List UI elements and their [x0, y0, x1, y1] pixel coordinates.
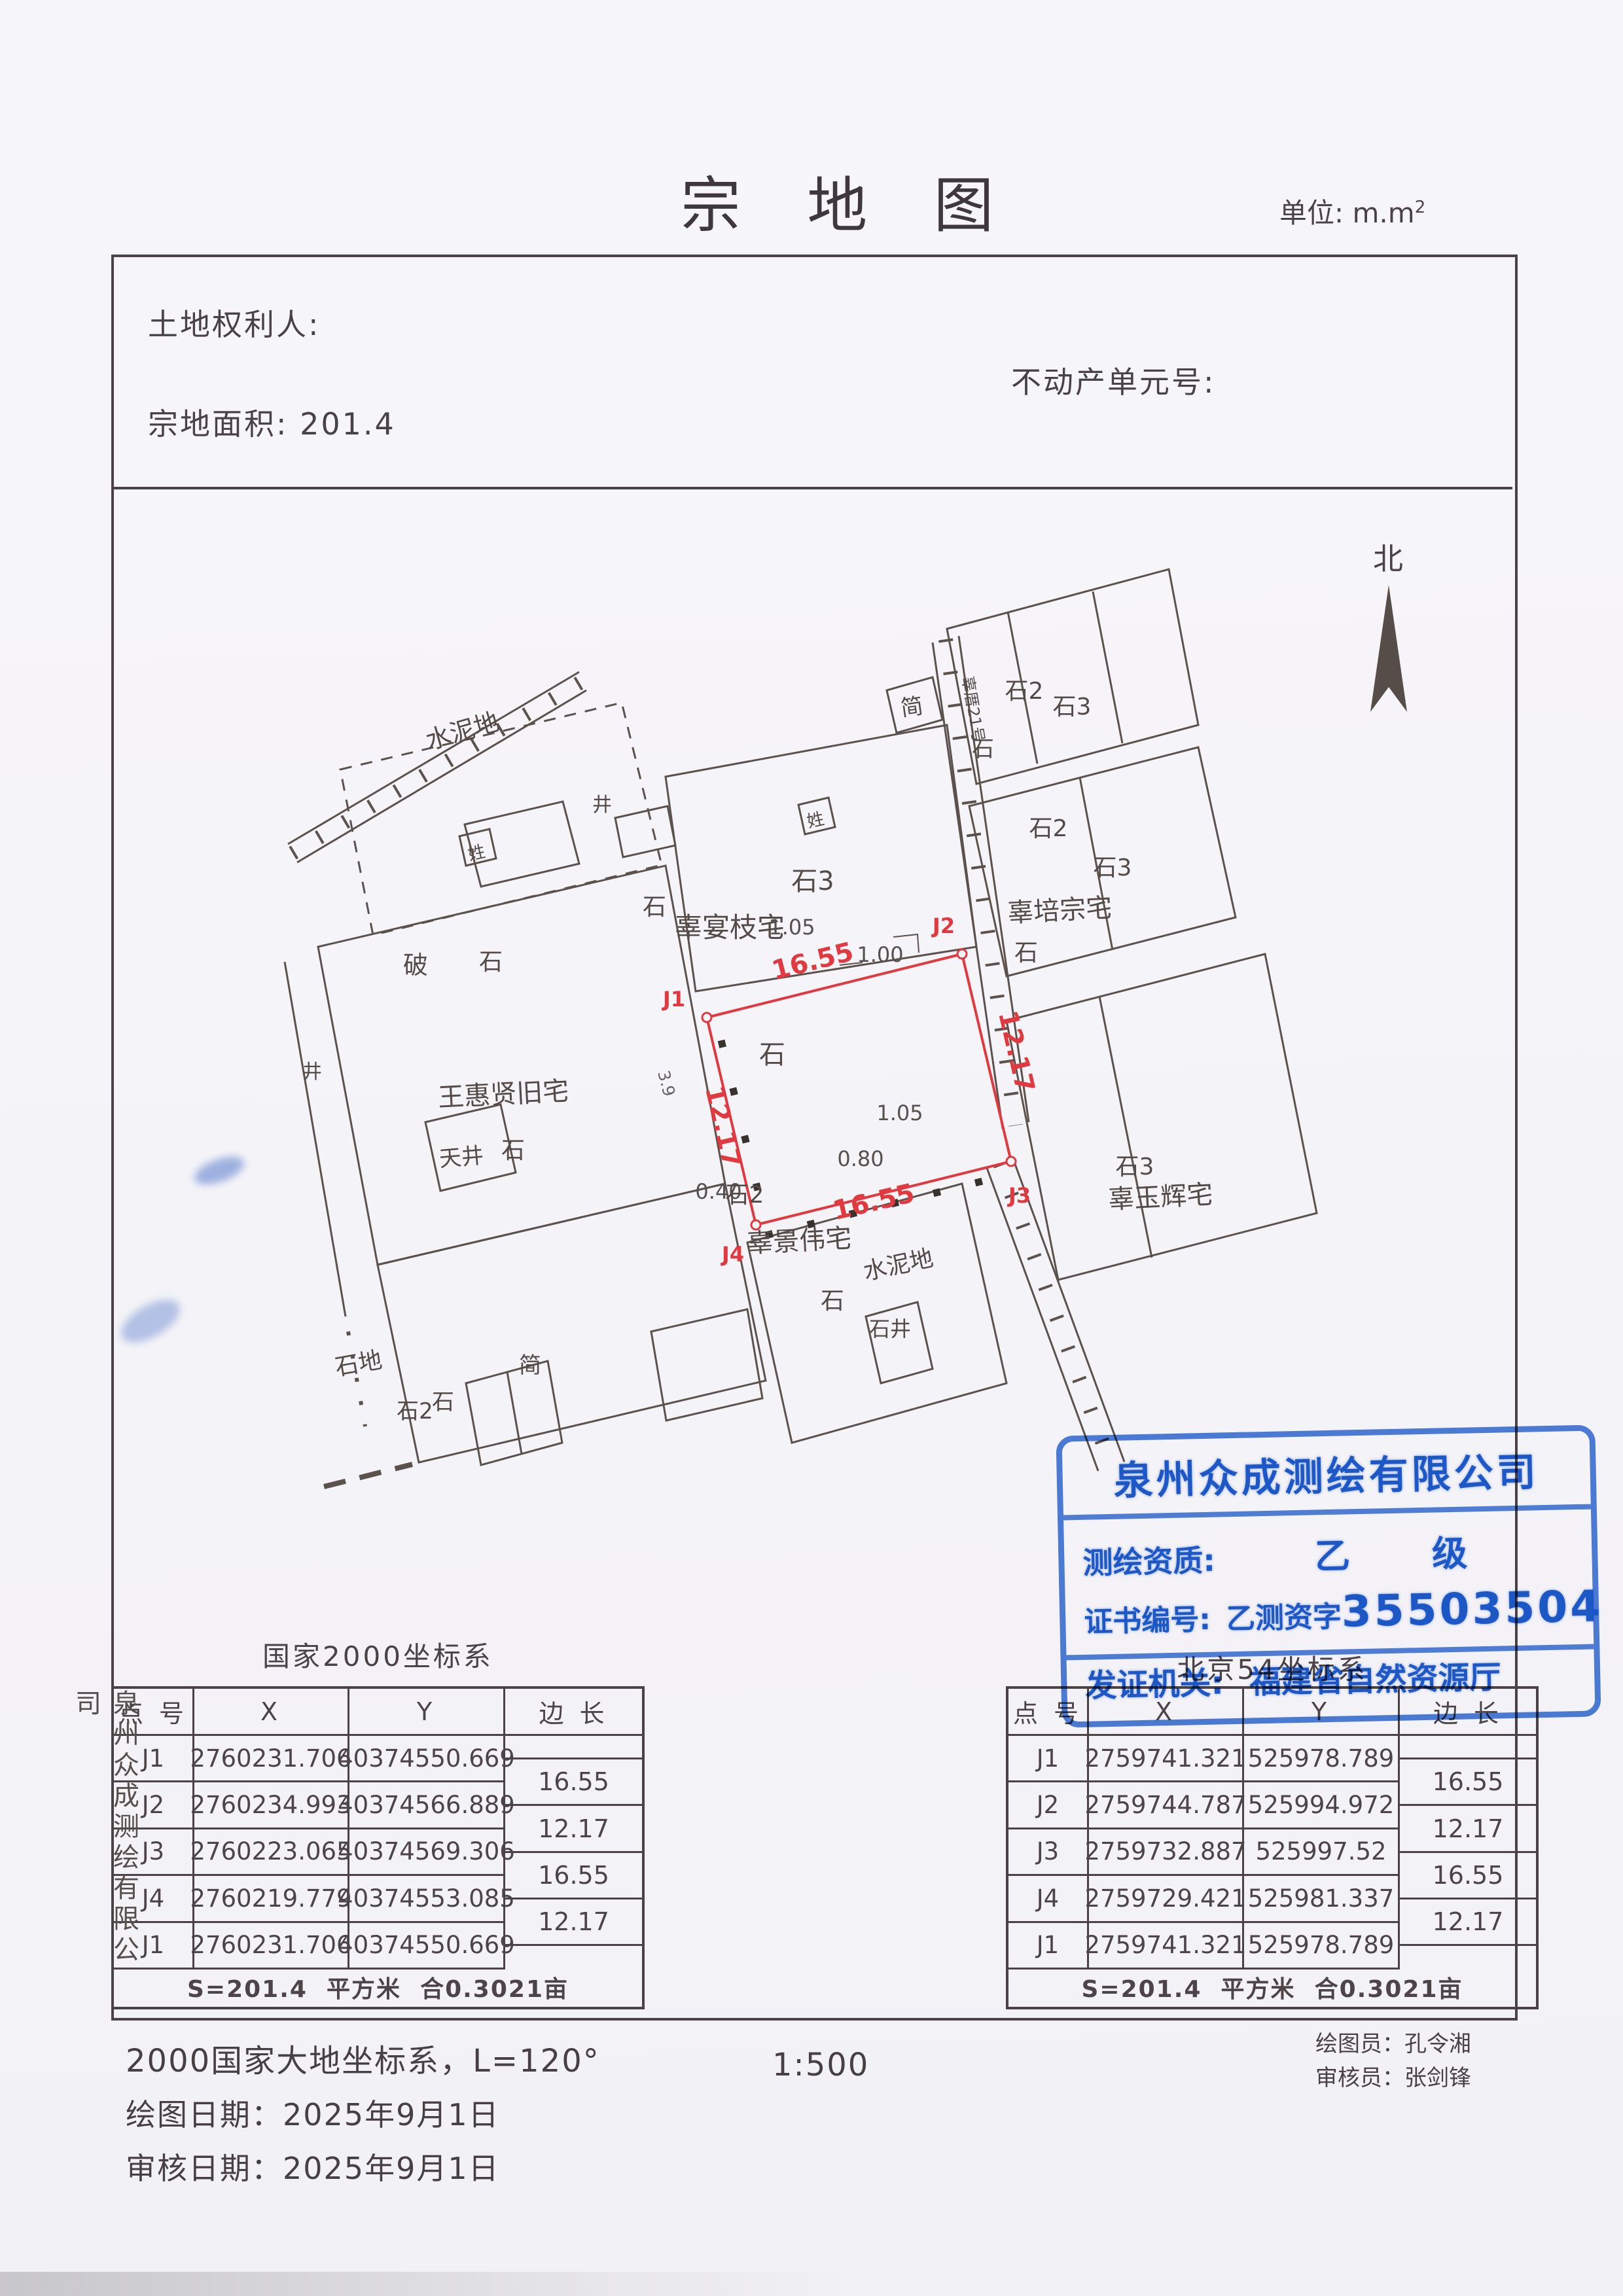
real-estate-unit-label: 不动产单元号:: [1011, 359, 1216, 402]
map-label: 石2: [397, 1398, 433, 1424]
cell: 525994.972: [1244, 1782, 1400, 1829]
cell: 2760219.779: [194, 1876, 349, 1922]
cell: 2759732.887: [1089, 1829, 1244, 1876]
map-label: 破: [403, 951, 428, 980]
building-wanghuixian: [318, 866, 725, 1265]
cell: 2759741.321: [1089, 1923, 1244, 1969]
map-label: 石2: [726, 1182, 764, 1209]
map-label: 王惠贤旧宅: [437, 1076, 569, 1113]
cell: 2760231.706: [194, 1736, 349, 1782]
cell: 525978.789: [1244, 1923, 1400, 1969]
drafter: 绘图员：孔令湘: [1315, 2026, 1471, 2058]
dim: 3.9: [654, 1069, 679, 1099]
stamp-issuer-value: 福建省自然资源厅: [1249, 1651, 1501, 1703]
cell: 40374566.889: [349, 1782, 505, 1829]
cell: J1: [1008, 1736, 1089, 1782]
area-summary: S=201.4 平方米 合0.3021亩: [1008, 1969, 1536, 2004]
map-labels: 水泥地 简 石3 辜宴枝宅 石 石 辜厝21号 石2 石3 石 石2 石3 辜培…: [302, 675, 1213, 1424]
parcel-area-label: 宗地面积: 201.4: [148, 400, 396, 444]
point-label: J4: [721, 1242, 744, 1267]
header-divider: [111, 487, 1512, 489]
review-date: 审核日期：2025年9月1日: [126, 2145, 500, 2188]
stamp-issuer-label: 发证机关:: [1085, 1657, 1224, 1705]
point-label: J2: [931, 913, 955, 938]
red-edge-lengths: 16.55 12.17 16.55 12.17 J1 J2 J3 J4: [662, 913, 1040, 1267]
map-label: 简: [519, 1352, 541, 1379]
map-label: 石: [759, 1040, 785, 1070]
col-header: 边 长: [505, 1689, 642, 1736]
cell: 40374569.306: [349, 1829, 505, 1876]
col-header: X: [194, 1689, 349, 1736]
building-bottomleft: [378, 1184, 766, 1462]
parcel-map-drawing: 16.55 12.17 16.55 12.17 J1 J2 J3 J4 1.05…: [249, 537, 1374, 1557]
dim: 0.80: [837, 1146, 883, 1171]
page-title: 宗 地 图: [681, 157, 1008, 244]
cell: J4: [1008, 1876, 1089, 1922]
edge-cell: 16.55: [505, 1759, 642, 1806]
road-hatching: [293, 681, 582, 853]
map-label: 石2: [1029, 815, 1068, 842]
edge-length: 16.55: [830, 1178, 918, 1226]
map-label: 石: [501, 1137, 525, 1164]
scanned-parcel-map-page: 宗 地 图 单位: m.m2 土地权利人: 不动产单元号: 宗地面积: 201.…: [0, 0, 1623, 2296]
map-label: 石: [1014, 940, 1038, 966]
cell: 40374550.669: [349, 1923, 505, 1969]
map-label: 天井: [438, 1142, 484, 1173]
edge-cell: 12.17: [1400, 1806, 1536, 1853]
map-label: 辜宴枝宅: [675, 911, 785, 944]
scan-artifact: [0, 2272, 851, 2296]
stamp-cert-prefix: 乙测资字: [1226, 1593, 1342, 1638]
vertex-J1: [702, 1013, 711, 1022]
map-label: 简: [899, 693, 925, 722]
stamp-company: 泉州众成测绘有限公司: [1062, 1431, 1591, 1521]
map-label: 辜培宗宅: [1007, 893, 1113, 928]
map-label: 石3: [1053, 694, 1092, 720]
coord-table-cgcs2000: 点 号 X Y 边 长 J12760231.70640374550.669 J2…: [111, 1686, 645, 2009]
table-header-row: 点 号 X Y 边 长: [114, 1689, 642, 1736]
dim: 1.00: [857, 942, 903, 967]
map-label: 石3: [1094, 855, 1132, 881]
cell: J2: [1008, 1782, 1089, 1829]
map-label: 石: [479, 949, 503, 976]
edge-cell: 16.55: [505, 1853, 642, 1899]
vertex-J2: [957, 949, 967, 959]
cell: 40374553.085: [349, 1876, 505, 1922]
col-header: Y: [349, 1689, 505, 1736]
area-summary: S=201.4 平方米 合0.3021亩: [114, 1969, 642, 2004]
draw-date: 绘图日期：2025年9月1日: [126, 2091, 500, 2134]
reviewer: 审核员：张剑锋: [1315, 2060, 1471, 2092]
edge-length-column: 16.55 12.17 16.55 12.17: [505, 1736, 642, 1969]
surveyor-stamp: 泉州众成测绘有限公司 测绘资质: 乙 级 证书编号: 乙测资字 35503504…: [1056, 1424, 1601, 1727]
edge-cell: 12.17: [1400, 1899, 1536, 1946]
sidebar-company-name: 泉州众成测绘有限公司: [67, 1689, 143, 1990]
left-table-title: 国家2000坐标系: [111, 1634, 645, 1674]
map-label: 石: [972, 736, 994, 762]
cell: 2759741.321: [1089, 1736, 1244, 1782]
edge-cell: 12.17: [505, 1899, 642, 1946]
land-rights-holder-label: 土地权利人:: [148, 301, 321, 344]
point-label: J1: [662, 987, 685, 1012]
cell: 525997.52: [1244, 1829, 1400, 1876]
point-label: J3: [1007, 1183, 1031, 1208]
edge-length: 16.55: [769, 937, 857, 986]
map-label: 辜玉辉宅: [1107, 1180, 1213, 1215]
road-hatching: [1000, 1163, 1111, 1466]
cell: 525978.789: [1244, 1736, 1400, 1782]
map-label: 姓: [805, 809, 826, 832]
building-outlines: [285, 569, 1317, 1487]
map-label: 石3: [791, 866, 834, 896]
map-label: 石: [432, 1389, 454, 1415]
map-label: 石井: [869, 1316, 911, 1341]
cell: 40374550.669: [349, 1736, 505, 1782]
cell: 525981.337: [1244, 1876, 1400, 1922]
ruin-dashed-outline: [340, 703, 662, 935]
building-guyuhui: [1007, 954, 1317, 1280]
map-label: 石3: [1116, 1154, 1154, 1180]
dim: 1.05: [876, 1101, 923, 1125]
map-scale: 1:500: [772, 2047, 869, 2083]
stamp-cert-label: 证书编号:: [1084, 1596, 1211, 1640]
map-label: 姓: [466, 842, 487, 865]
geodetic-note: 2000国家大地坐标系，L=120°: [126, 2035, 600, 2081]
map-label: 石地: [333, 1347, 384, 1381]
cell: 2759729.421: [1089, 1876, 1244, 1922]
table-rows: J12759741.321525978.789 J22759744.787525…: [1008, 1736, 1400, 1969]
map-label: 石: [643, 894, 666, 921]
stamp-qualification-label: 测绘资质:: [1082, 1536, 1216, 1582]
stamp-qualification-value: 乙 级: [1215, 1522, 1574, 1581]
well-icon: 井: [302, 1061, 322, 1084]
edge-cell: 12.17: [505, 1806, 642, 1853]
well-icon: 井: [592, 794, 612, 817]
cell: J3: [1008, 1829, 1089, 1876]
cell: 2760234.993: [194, 1782, 349, 1829]
table-rows: J12760231.70640374550.669 J22760234.9934…: [114, 1736, 505, 1969]
cell: J1: [1008, 1923, 1089, 1969]
unit-note: 单位: m.m2: [1279, 191, 1425, 231]
map-label: 石: [821, 1288, 844, 1315]
stamp-cert-number: 35503504: [1341, 1581, 1603, 1637]
edge-length: 12.17: [699, 1083, 747, 1171]
cell: 2760223.065: [194, 1829, 349, 1876]
edge-length: 12.17: [992, 1008, 1040, 1095]
edge-length-column: 16.55 12.17 16.55 12.17: [1400, 1736, 1536, 1969]
coord-table-beijing54: 点 号 X Y 边 长 J12759741.321525978.789 J227…: [1006, 1686, 1539, 2009]
map-label: 辜景伟宅: [746, 1224, 852, 1259]
cell: 2760231.706: [194, 1923, 349, 1969]
map-label: 石2: [1005, 678, 1044, 705]
edge-cell: 16.55: [1400, 1853, 1536, 1899]
map-label: 水泥地: [861, 1245, 936, 1286]
vertex-J3: [1007, 1157, 1016, 1166]
edge-cell: 16.55: [1400, 1759, 1536, 1806]
cell: 2759744.787: [1089, 1782, 1244, 1829]
